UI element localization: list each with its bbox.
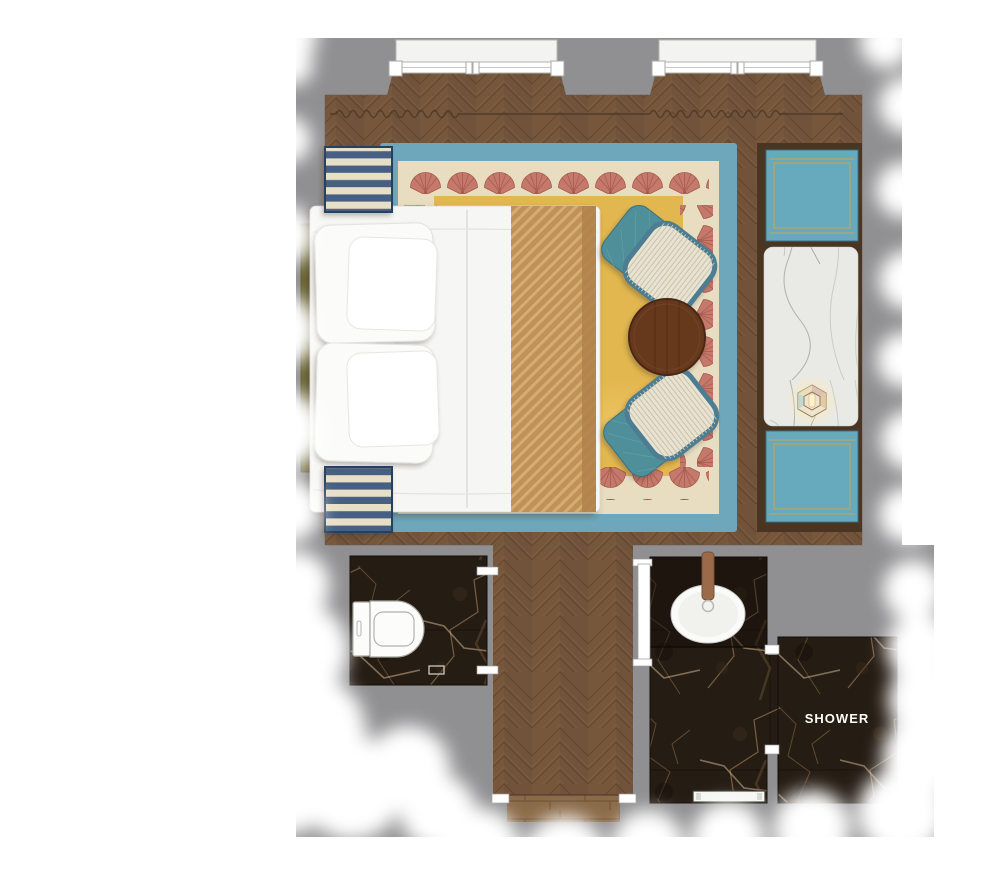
luggage-ottoman-top (766, 150, 858, 241)
vanity-sliding-door (638, 564, 650, 660)
round-side-table (629, 299, 705, 375)
vanity-door-jamb-bottom (633, 659, 652, 666)
floorplan-canvas: SHOWER (0, 0, 1000, 873)
entry-door-jamb-left (492, 794, 509, 803)
shower-door-jamb-bottom (765, 745, 779, 754)
shower-bench (693, 791, 765, 802)
corridor-floor (493, 545, 633, 822)
lantern (786, 375, 838, 427)
marble-console (764, 247, 858, 427)
console-run (757, 143, 862, 532)
window-bay-left (387, 72, 566, 95)
striped-bench-bottom (325, 467, 392, 532)
luggage-ottoman-bottom (766, 431, 858, 522)
rug-shell-border-top (408, 172, 709, 205)
shower-label: SHOWER (805, 711, 870, 726)
shower-door-jamb-top (765, 645, 779, 654)
toilet (353, 601, 424, 657)
pillow-small-bottom (346, 350, 439, 447)
bed-runner-edge (582, 206, 596, 512)
faucet (702, 552, 714, 600)
window-left (389, 40, 564, 76)
pillow-small-top (346, 236, 437, 331)
shower-doorway-floor (766, 655, 779, 745)
wc-room (350, 556, 487, 685)
window-right (652, 40, 823, 76)
window-bay-right (650, 72, 825, 95)
vanity-room (650, 552, 767, 803)
wc-door-jamb-top (477, 567, 498, 575)
wc-door-jamb-bottom (477, 666, 498, 674)
entry-door-jamb-right (619, 794, 636, 803)
striped-bench-top (325, 147, 392, 212)
